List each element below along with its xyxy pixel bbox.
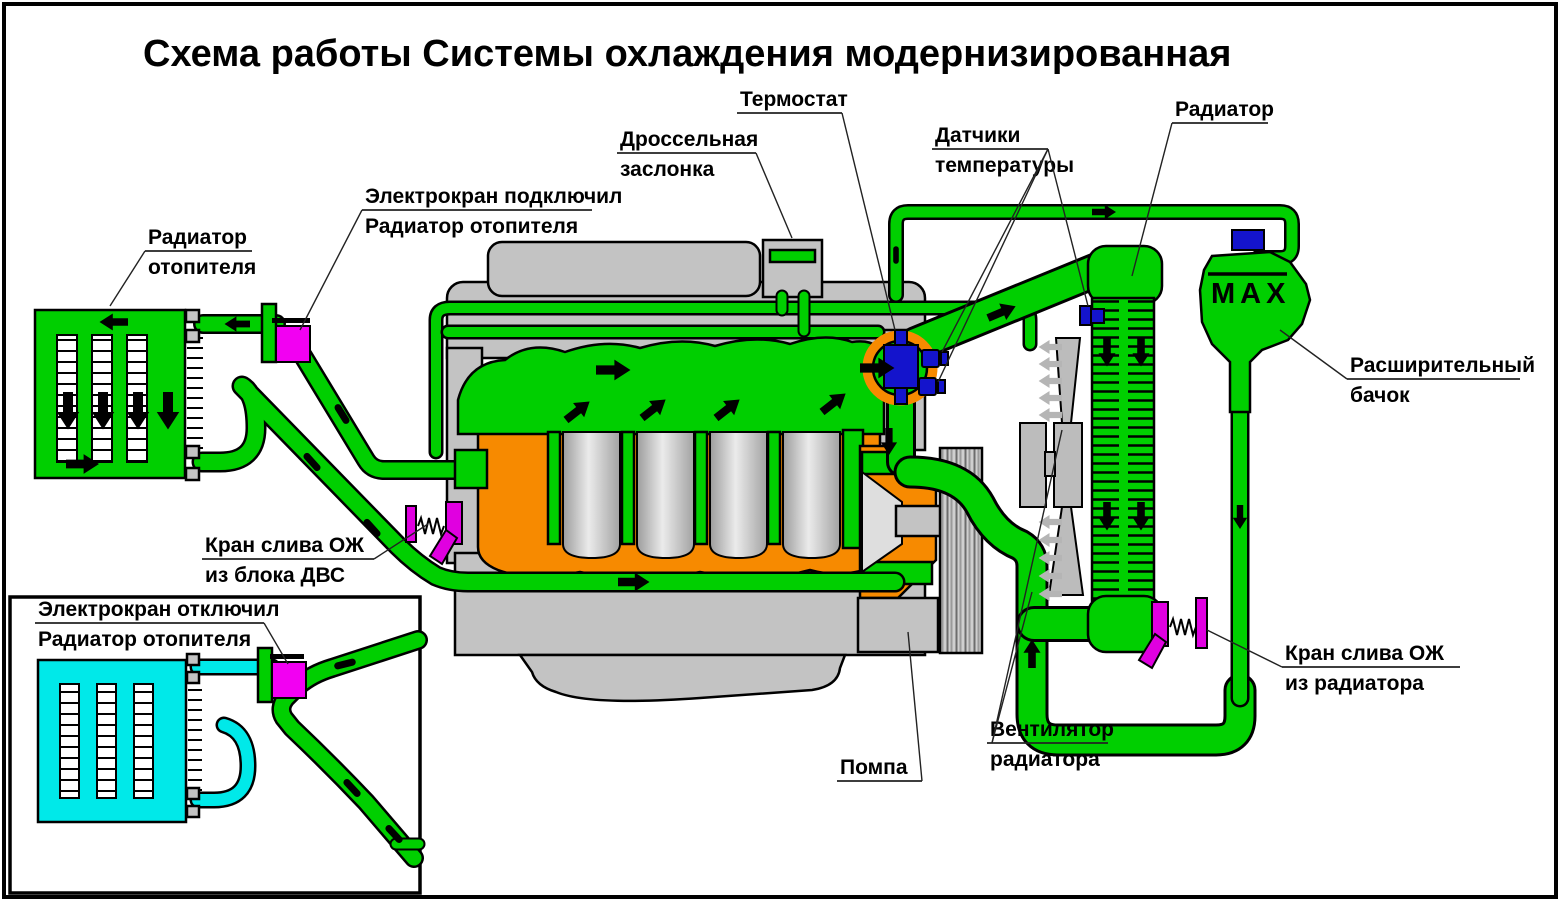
label-fan-2: радиатора [990,748,1100,771]
cylinder [783,432,840,558]
label-temp-sensors-1: Датчики [935,124,1020,147]
radiator-top-tank [1088,246,1162,304]
heater-radiator-inset [38,654,202,822]
heater-electro-valve-off [258,648,306,702]
fan-motor [1020,423,1046,507]
cylinder [710,432,767,558]
temp-sensor [922,350,939,367]
label-engine-drain-2: из блока ДВС [205,564,345,587]
label-radiator: Радиатор [1175,98,1274,121]
throttle-coolant-passage [770,250,815,262]
fan-motor [1054,423,1082,507]
engine-coolant-jacket [458,337,884,579]
heater-radiator-main [35,310,203,480]
temp-sensor [919,378,936,395]
heater-port [186,446,199,458]
coolant-slot [768,432,780,544]
coolant-slot [548,432,560,544]
heater-port [186,310,199,322]
tank-cap [1232,230,1264,250]
main-radiator [1080,246,1162,652]
label-pump: Помпа [840,756,908,779]
diagram-title: Схема работы Системы охлаждения модерниз… [143,33,1231,75]
head-coolant-passage [458,337,884,434]
label-expansion-tank-2: бачок [1350,384,1410,407]
cooling-system-diagram: MAX [0,0,1560,901]
heater-port [186,330,199,342]
throttle-body [763,240,822,297]
label-valve-off-1: Электрокран отключил [38,598,279,621]
heater-outlet-junction [455,450,487,488]
pump-shaft [896,506,946,536]
label-engine-drain-1: Кран слива ОЖ [205,534,365,557]
label-throttle-2: заслонка [620,158,715,181]
electro-valve-body [276,326,310,362]
cylinder [563,432,620,558]
electro-valve-body [272,662,306,698]
diagram-canvas: MAX [0,0,1560,901]
label-valve-on-2: Радиатор отопителя [365,215,578,238]
label-fan-1: Вентилятор [990,718,1114,741]
max-mark: MAX [1211,278,1290,310]
valve-cover [488,242,760,296]
label-expansion-tank-1: Расширительный [1350,354,1535,377]
coolant-slot [622,432,634,544]
coolant-slot [695,432,707,544]
label-thermostat: Термостат [740,88,848,111]
label-throttle-1: Дроссельная [620,128,758,151]
label-radiator-drain-2: из радиатора [1285,672,1424,695]
label-heater-radiator-1: Радиатор [148,226,247,249]
radiator-temp-sensor [1080,306,1091,325]
label-heater-radiator-2: отопителя [148,256,256,279]
cylinder [637,432,694,558]
label-radiator-drain-1: Кран слива ОЖ [1285,642,1445,665]
label-valve-on-1: Электрокран подключил [365,185,622,208]
heater-port [186,468,199,480]
label-temp-sensors-2: температуры [935,154,1074,177]
label-valve-off-2: Радиатор отопителя [38,628,251,651]
